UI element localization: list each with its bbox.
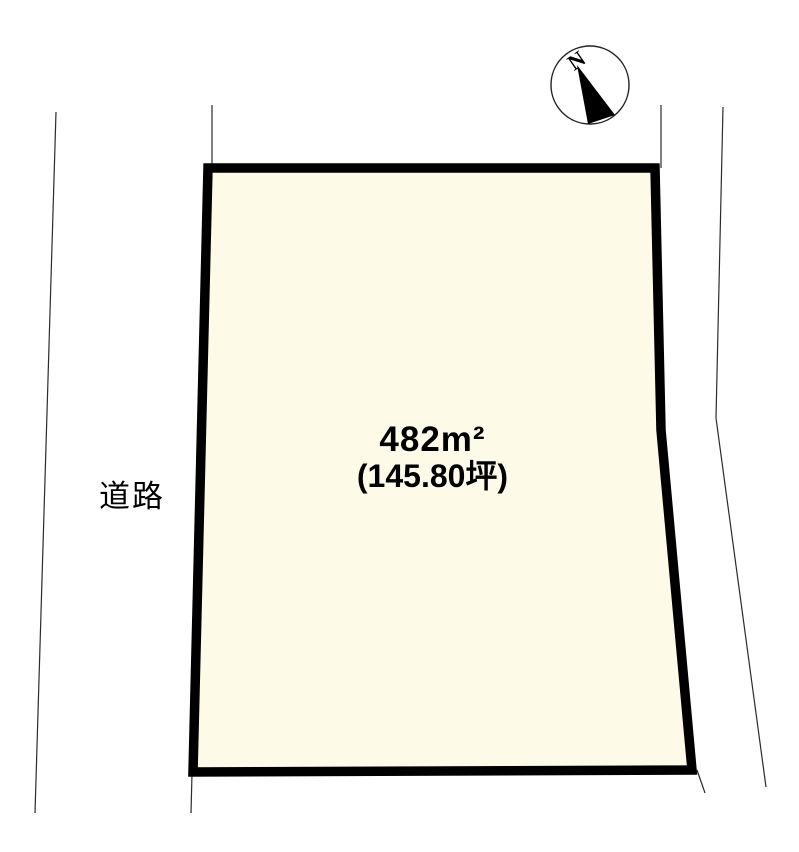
road-line-left bbox=[35, 112, 56, 813]
plot-area-tsubo: (145.80坪) bbox=[255, 458, 610, 495]
road-line-right bbox=[716, 107, 766, 787]
land-plot-diagram: N 道路 482m² (145.80坪) bbox=[0, 0, 799, 852]
compass: N bbox=[551, 46, 629, 124]
boundary-stub-bottom-right bbox=[697, 770, 705, 793]
boundary-stub-bottom-left bbox=[191, 774, 192, 813]
plot-area-label: 482m² (145.80坪) bbox=[255, 421, 610, 495]
road-label: 道路 bbox=[99, 471, 165, 516]
plot-area-square-meters: 482m² bbox=[255, 421, 610, 458]
